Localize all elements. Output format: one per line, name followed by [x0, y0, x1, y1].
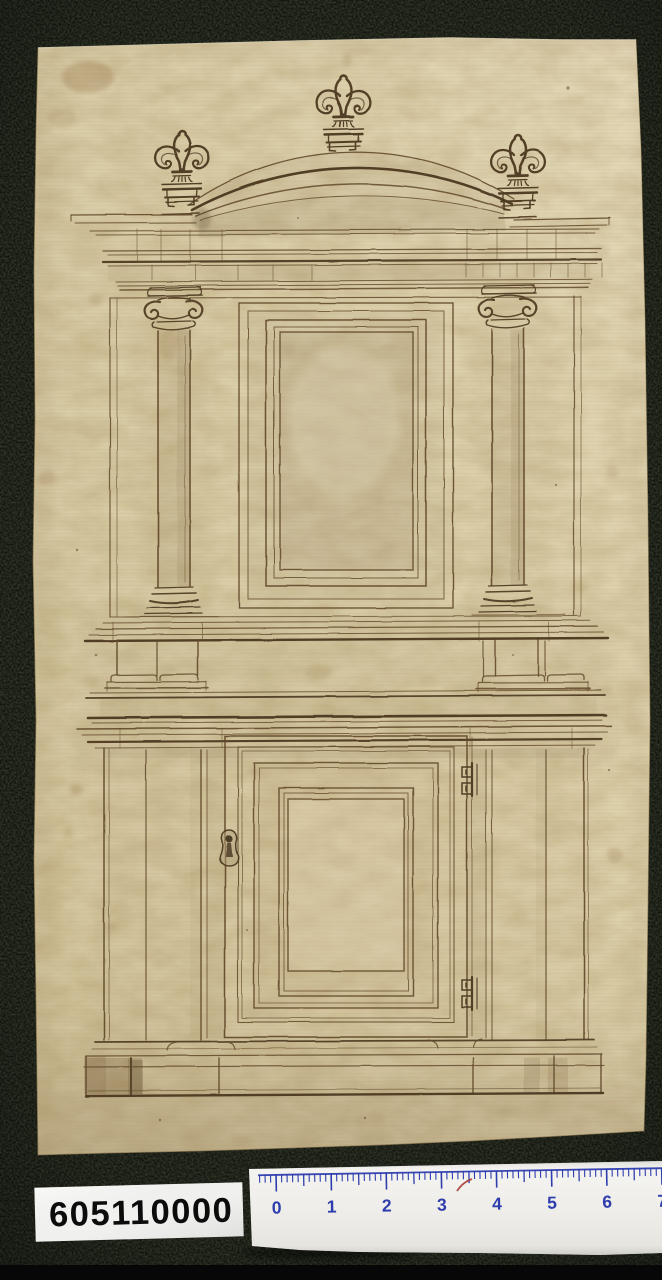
svg-text:1: 1: [327, 1196, 337, 1216]
svg-text:605110000: 605110000: [49, 1192, 234, 1235]
svg-text:2: 2: [382, 1195, 392, 1215]
svg-text:7: 7: [657, 1191, 662, 1211]
svg-text:0: 0: [272, 1197, 282, 1217]
svg-text:6: 6: [602, 1192, 612, 1212]
svg-text:3: 3: [437, 1195, 447, 1215]
svg-text:4: 4: [492, 1194, 502, 1214]
svg-text:5: 5: [547, 1193, 557, 1213]
